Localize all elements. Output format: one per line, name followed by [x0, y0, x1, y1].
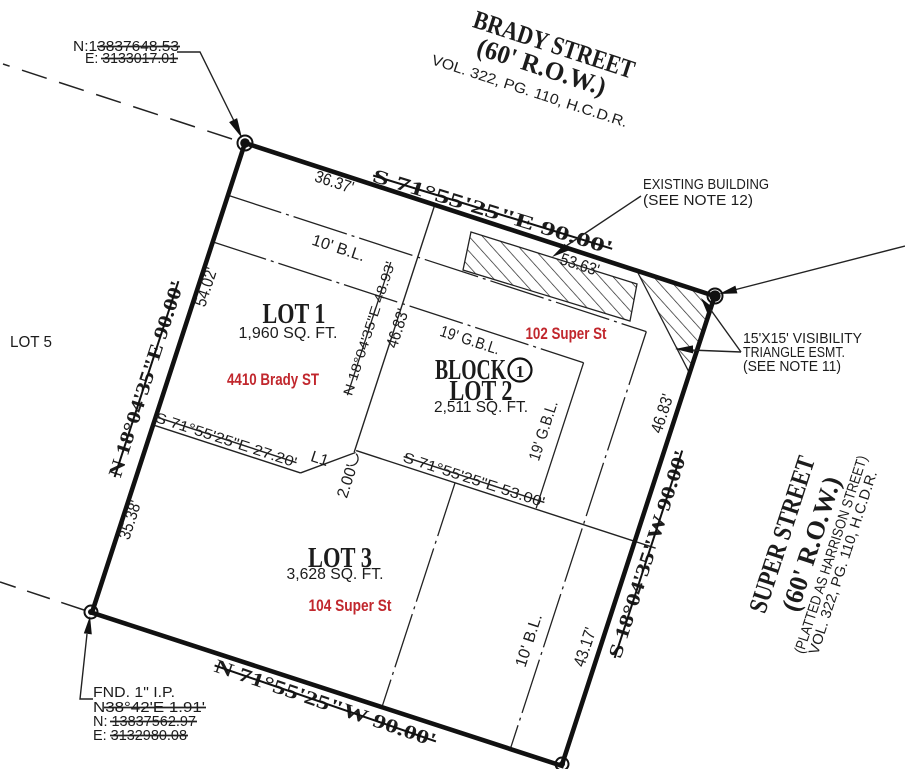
- svg-text:4410 Brady ST: 4410 Brady ST: [227, 371, 319, 389]
- svg-text:1,960 SQ. FT.: 1,960 SQ. FT.: [239, 325, 338, 342]
- svg-text:(SEE NOTE 11): (SEE NOTE 11): [743, 358, 841, 375]
- svg-text:2,511 SQ. FT.: 2,511 SQ. FT.: [434, 399, 528, 416]
- svg-text:102 Super St: 102 Super St: [526, 325, 607, 343]
- svg-text:(SEE NOTE 12): (SEE NOTE 12): [643, 192, 753, 209]
- svg-text:1: 1: [516, 362, 525, 381]
- svg-text:LOT 5: LOT 5: [10, 334, 52, 351]
- svg-text:3,628 SQ. FT.: 3,628 SQ. FT.: [287, 566, 384, 583]
- svg-text:104 Super St: 104 Super St: [309, 597, 392, 615]
- svg-text:EXISTING BUILDING: EXISTING BUILDING: [643, 176, 769, 193]
